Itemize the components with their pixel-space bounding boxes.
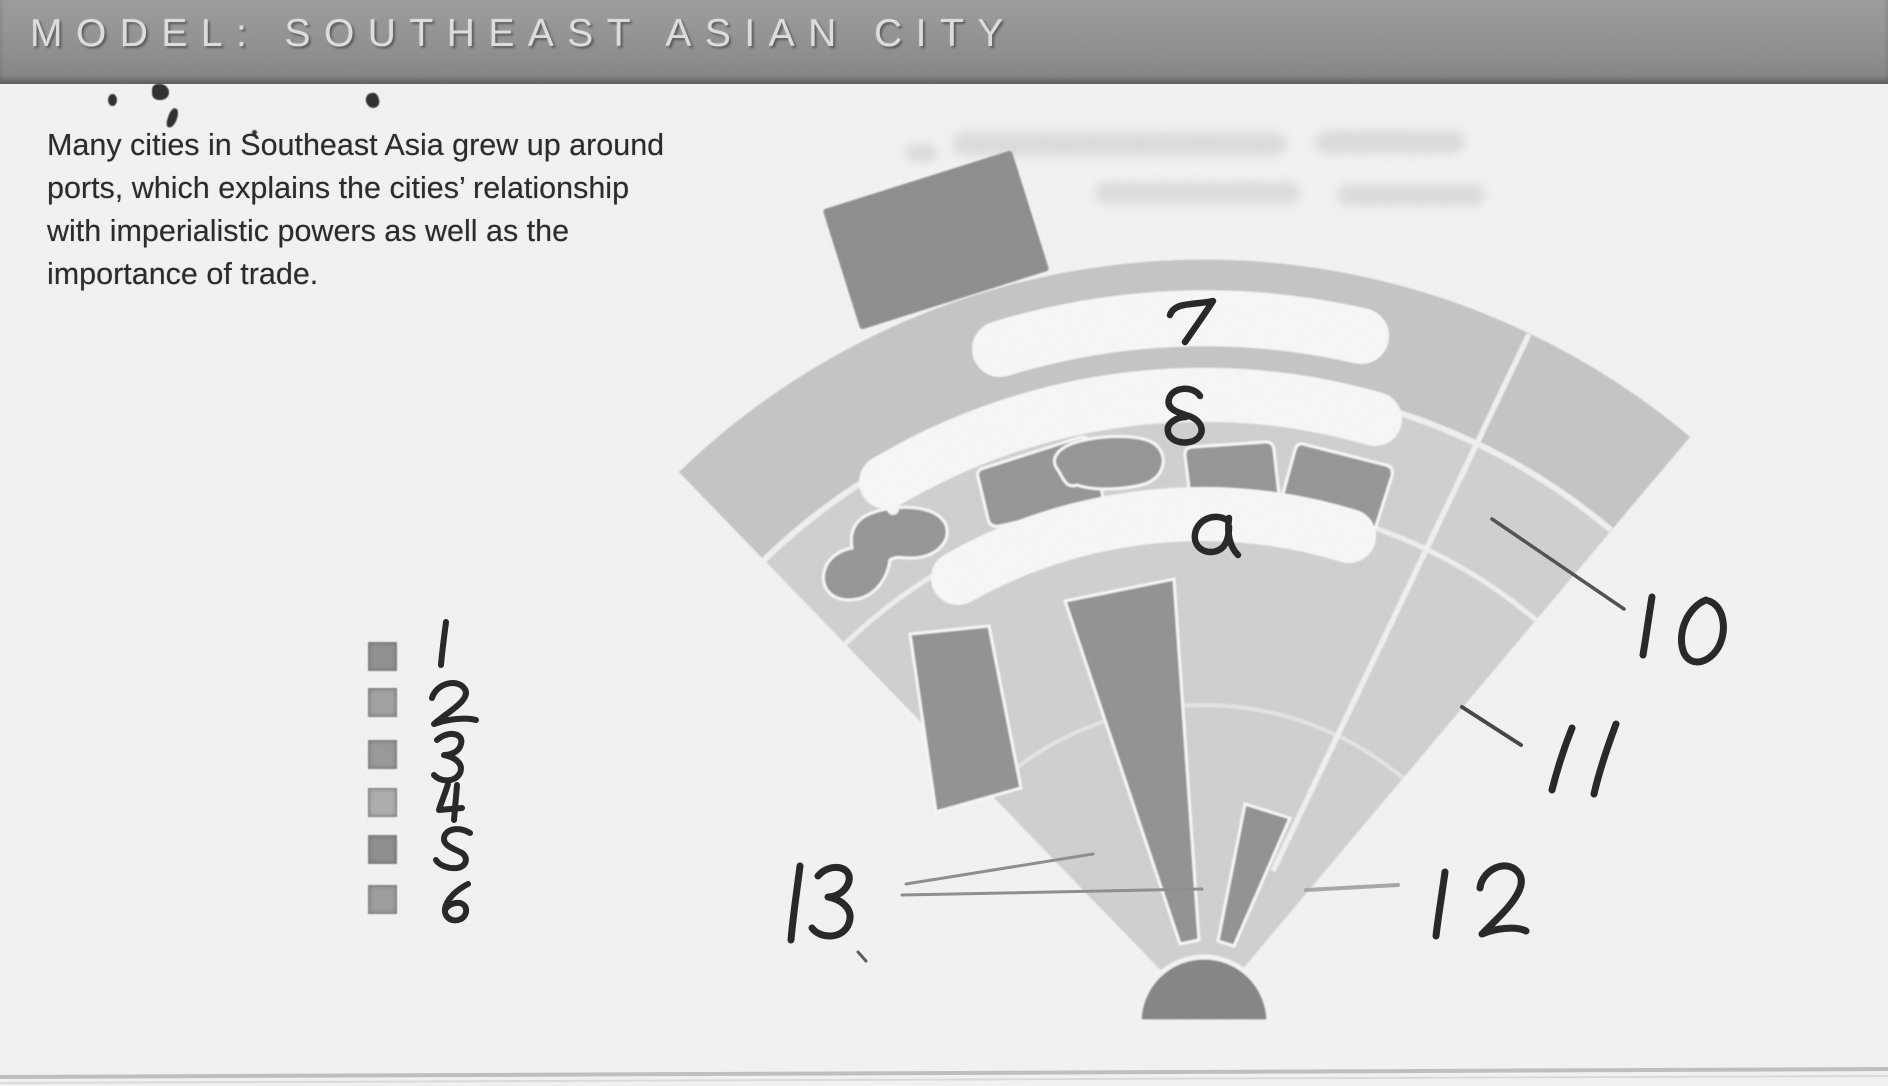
handwritten-label-11 <box>1552 724 1616 794</box>
intro-paragraph: Many cities in Southeast Asia grew up ar… <box>47 124 767 296</box>
whiteout-swooshes <box>886 318 1375 578</box>
legend-swatch-6 <box>368 885 397 914</box>
central-wedge <box>1065 579 1199 944</box>
intro-line: Many cities in Southeast Asia grew up ar… <box>47 124 767 167</box>
whiteout-drip <box>887 503 899 515</box>
fan-sector <box>679 260 1690 1015</box>
whiteout-zone-7 <box>1000 318 1361 349</box>
handwritten-annotations <box>432 301 1723 940</box>
page-title: MODEL: SOUTHEAST ASIAN CITY <box>30 12 1017 56</box>
legend-swatch-1 <box>368 642 397 671</box>
legend-swatch-5 <box>368 835 397 864</box>
port-semicircle <box>1139 957 1269 1022</box>
ink-speck <box>108 94 117 106</box>
blob-rect-left <box>978 437 1103 526</box>
right-small-wedge <box>1218 804 1290 946</box>
leader-line-12 <box>1306 885 1398 890</box>
intro-line: ports, which explains the cities’ relati… <box>47 167 767 210</box>
inner-zone-wedges <box>910 579 1290 946</box>
blob-rect-center-right <box>1185 442 1279 512</box>
legend-number-3 <box>434 734 461 780</box>
handwritten-label-13 <box>791 866 850 940</box>
ink-speck <box>364 92 380 110</box>
legend-number-2 <box>432 683 476 724</box>
legend-number-1 <box>441 622 446 665</box>
leader-line-13-upper <box>906 854 1093 884</box>
ring-divider-arc-1 <box>764 382 1611 560</box>
handwritten-label-8 <box>1168 389 1202 443</box>
scanned-worksheet-page: MODEL: SOUTHEAST ASIAN CITY Many cities … <box>0 0 1888 1086</box>
whiteout-zone-7b <box>1025 318 1330 340</box>
stray-pen-tick <box>858 952 866 961</box>
intro-line: importance of trade. <box>47 253 767 296</box>
legend-number-6 <box>445 884 468 920</box>
blob-amoeba-center <box>1054 436 1163 489</box>
legend-swatch-2 <box>368 688 397 717</box>
sector-divider-line <box>1273 334 1529 871</box>
section-header-bar: MODEL: SOUTHEAST ASIAN CITY <box>0 0 1888 84</box>
whiteout-zone-9 <box>958 514 1349 578</box>
bleedthrough-smudges <box>905 130 1485 206</box>
middle-ring-blobs <box>823 436 1392 600</box>
port-rectangle <box>823 150 1050 330</box>
intro-line: with imperialistic powers as well as the <box>47 210 767 253</box>
blob-rect-right <box>1281 444 1393 533</box>
bottom-scan-line <box>0 1069 1888 1083</box>
leader-line-13-lower <box>902 889 1202 895</box>
ring-divider-arc-2 <box>845 499 1536 644</box>
legend-number-5 <box>436 829 470 868</box>
ring-divider-arc-3 <box>988 705 1403 792</box>
leader-line-10 <box>1492 519 1624 609</box>
handwritten-label-9 <box>1195 517 1238 555</box>
ink-speck <box>152 84 169 100</box>
leader-lines <box>858 519 1624 961</box>
legend-swatch-3 <box>368 740 397 769</box>
whiteout-drip <box>869 481 891 503</box>
handwritten-label-12 <box>1436 866 1526 936</box>
handwritten-label-7 <box>1170 301 1213 342</box>
leader-line-11 <box>1462 707 1521 745</box>
whiteout-zone-8 <box>886 395 1375 482</box>
left-tilted-wedge <box>910 626 1021 812</box>
legend-swatch-4 <box>368 788 397 817</box>
handwritten-label-10 <box>1643 597 1723 662</box>
blob-amoeba-left <box>823 507 947 600</box>
fan-outer-ring <box>679 260 1690 560</box>
legend-number-4 <box>439 784 462 820</box>
